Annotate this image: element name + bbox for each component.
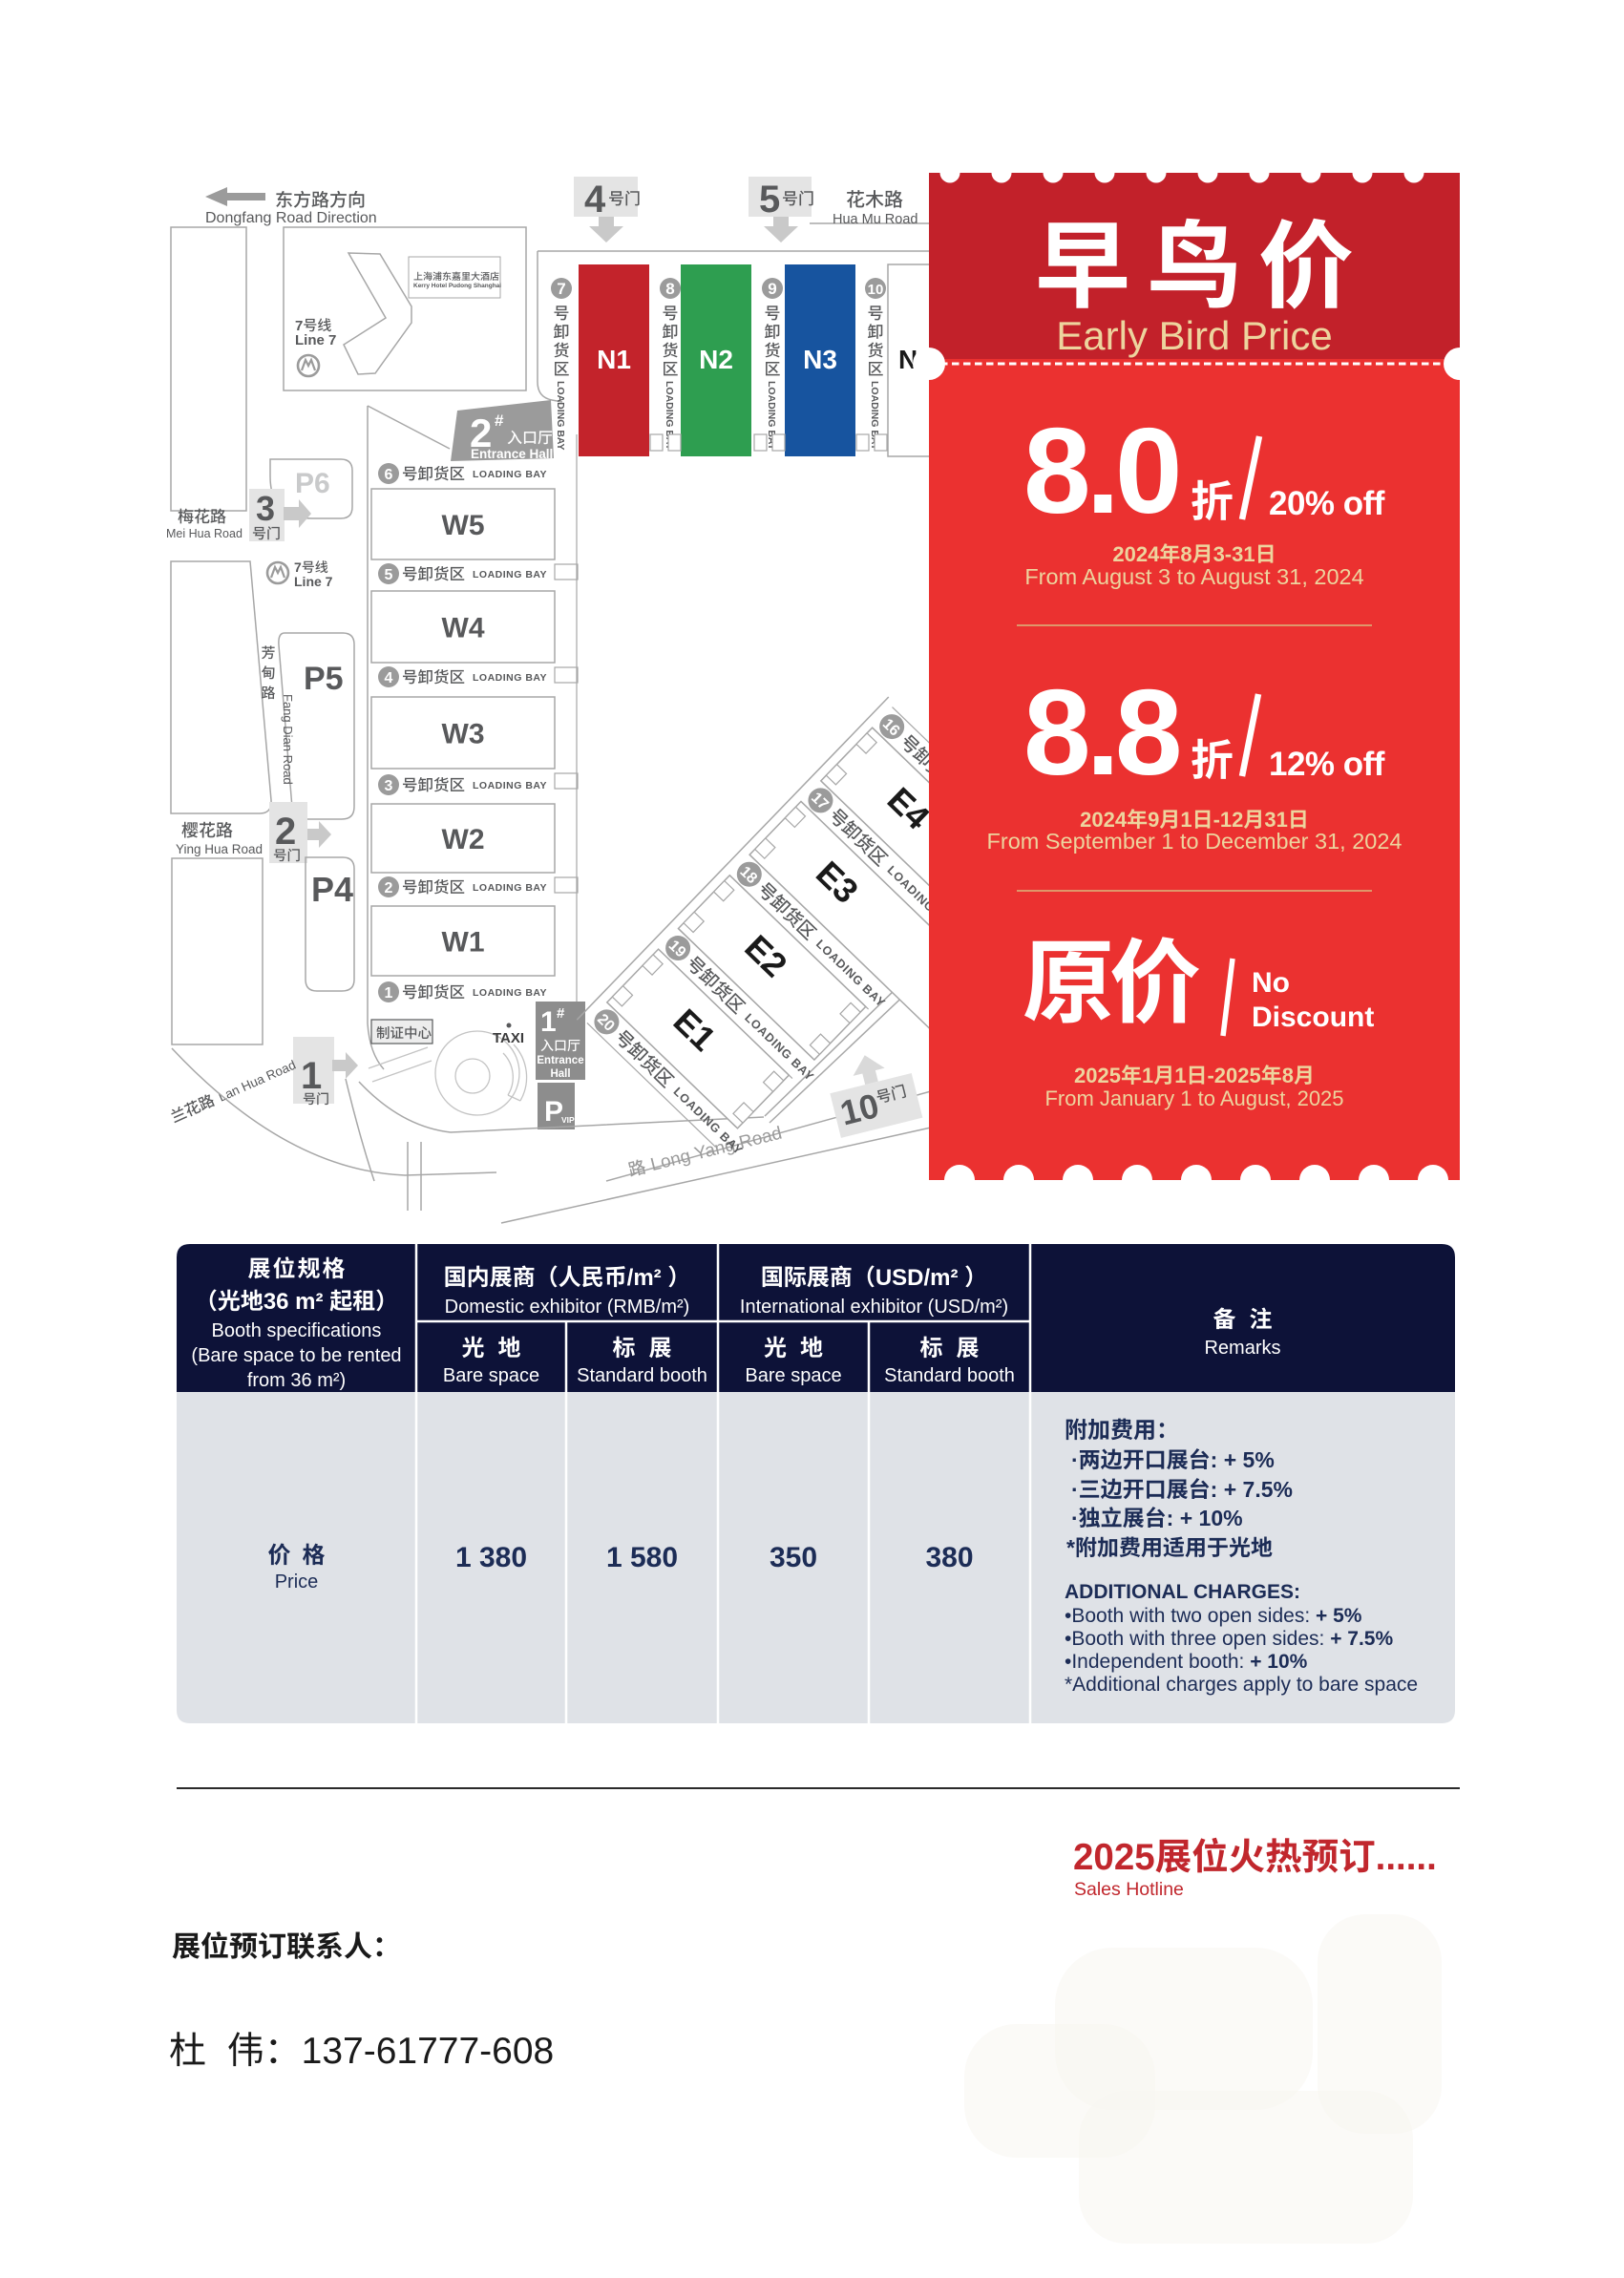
svg-text:Hall: Hall [550, 1068, 570, 1080]
svg-text:P: P [544, 1096, 563, 1128]
svg-text:6: 6 [385, 467, 393, 483]
svg-text:N2: N2 [699, 345, 733, 374]
svg-text:36 m²: 36 m² [264, 1289, 324, 1315]
svg-text:Standard booth: Standard booth [577, 1365, 707, 1386]
svg-text:VIP: VIP [561, 1115, 575, 1125]
svg-text:#: # [495, 411, 504, 430]
svg-text:8.0: 8.0 [1023, 403, 1178, 538]
svg-text:Dongfang Road Direction: Dongfang Road Direction [205, 210, 377, 226]
svg-text:Sales Hotline: Sales Hotline [1074, 1879, 1184, 1900]
svg-text:2: 2 [275, 811, 296, 853]
svg-text:8: 8 [665, 280, 674, 298]
svg-text:*Additional charges apply to b: *Additional charges apply to bare space [1065, 1674, 1418, 1696]
svg-text:W5: W5 [442, 510, 485, 541]
svg-text:5: 5 [759, 179, 780, 221]
svg-text:Mei Hua Road: Mei Hua Road [166, 527, 243, 540]
svg-text:1: 1 [540, 1006, 557, 1038]
svg-text:4: 4 [385, 670, 393, 686]
svg-text:Entrance Hall: Entrance Hall [471, 447, 553, 461]
svg-text:From January 1 to August, 2025: From January 1 to August, 2025 [1044, 1086, 1343, 1110]
svg-text:Ying Hua Road: Ying Hua Road [176, 842, 263, 856]
svg-text:1: 1 [385, 985, 393, 1002]
svg-text:Discount: Discount [1252, 1002, 1374, 1033]
svg-text:*: * [1066, 1535, 1075, 1560]
svg-text:International exhibitor (USD/m: International exhibitor (USD/m²) [740, 1297, 1008, 1318]
svg-text:W1: W1 [442, 927, 485, 959]
svg-text:8.8: 8.8 [1023, 664, 1179, 800]
svg-text:No: No [1252, 967, 1290, 999]
svg-text:LOADING BAY: LOADING BAY [473, 882, 547, 894]
svg-text:P5: P5 [304, 661, 344, 697]
svg-text:12% off: 12% off [1269, 746, 1385, 783]
svg-text:Standard booth: Standard booth [884, 1365, 1015, 1386]
svg-text:+ 5%: + 5% [1316, 1605, 1362, 1627]
svg-text:Kerry Hotel Pudong Shanghai: Kerry Hotel Pudong Shanghai [413, 283, 501, 289]
svg-text:3: 3 [385, 778, 393, 794]
svg-text:1: 1 [1142, 1064, 1153, 1087]
svg-text:: + 10%: : + 10% [1167, 1506, 1243, 1530]
svg-text:1 380: 1 380 [455, 1542, 527, 1573]
svg-text:from 36 m²): from 36 m²) [247, 1370, 346, 1391]
svg-text:Price: Price [275, 1571, 319, 1592]
svg-text:LOADING BAY: LOADING BAY [473, 987, 547, 999]
svg-text:P4: P4 [311, 870, 353, 909]
svg-text:P6: P6 [295, 468, 330, 499]
svg-text:Remarks: Remarks [1204, 1338, 1280, 1359]
svg-text:: + 7.5%: : + 7.5% [1211, 1477, 1293, 1502]
svg-text:ADDITIONAL CHARGES:: ADDITIONAL CHARGES: [1065, 1581, 1300, 1603]
svg-text:·: · [1071, 1506, 1079, 1530]
svg-text:2025: 2025 [1074, 1064, 1121, 1087]
svg-text:LOADING BAY: LOADING BAY [473, 780, 547, 791]
svg-text:1: 1 [1174, 1064, 1186, 1087]
svg-text:7: 7 [294, 559, 302, 575]
svg-text:9: 9 [768, 280, 776, 298]
svg-text:From August 3 to August 31, 20: From August 3 to August 31, 2024 [1024, 564, 1363, 589]
svg-text:: + 5%: : + 5% [1211, 1447, 1275, 1472]
svg-text:Line 7: Line 7 [294, 574, 333, 589]
svg-text:Line 7: Line 7 [295, 332, 336, 348]
svg-text:/m²: /m² [627, 1265, 662, 1291]
svg-text:-2025: -2025 [1207, 1064, 1260, 1087]
svg-text:W2: W2 [442, 824, 485, 855]
svg-text:TAXI: TAXI [493, 1030, 524, 1046]
svg-text:350: 350 [770, 1542, 817, 1573]
svg-text:+ 10%: + 10% [1250, 1651, 1307, 1673]
svg-text:Entrance: Entrance [537, 1055, 583, 1066]
svg-text:LOADING BAY: LOADING BAY [555, 381, 566, 451]
svg-text:From September 1 to December 3: From September 1 to December 31, 2024 [987, 829, 1403, 854]
svg-text:W4: W4 [442, 613, 485, 644]
svg-text:N3: N3 [803, 345, 837, 374]
svg-text:+ 7.5%: + 7.5% [1330, 1628, 1393, 1650]
svg-text:2: 2 [385, 880, 393, 896]
svg-text:N1: N1 [597, 345, 631, 374]
svg-text:1 580: 1 580 [606, 1542, 678, 1573]
svg-text:Domestic exhibitor (RMB/m²): Domestic exhibitor (RMB/m²) [445, 1297, 690, 1318]
svg-text:......: ...... [1376, 1837, 1437, 1878]
svg-text:2025: 2025 [1073, 1837, 1155, 1878]
svg-text:Early Bird Price: Early Bird Price [1056, 313, 1332, 358]
svg-text:LOADING BAY: LOADING BAY [473, 672, 547, 684]
svg-text:Booth specifications: Booth specifications [212, 1320, 382, 1341]
svg-text:Fang Dian Road: Fang Dian Road [281, 694, 295, 785]
svg-text:#: # [557, 1005, 565, 1022]
svg-text:(Bare space to be rented: (Bare space to be rented [191, 1345, 401, 1366]
svg-text:10: 10 [868, 282, 884, 298]
svg-text:1: 1 [301, 1055, 322, 1097]
svg-text:3-31: 3-31 [1213, 542, 1255, 566]
svg-text:8: 8 [1282, 1064, 1294, 1087]
svg-text:8: 8 [1180, 542, 1192, 566]
svg-text:·: · [1071, 1477, 1079, 1502]
svg-text:3: 3 [256, 489, 275, 528]
svg-text:Bare space: Bare space [443, 1365, 539, 1386]
svg-text:380: 380 [925, 1542, 973, 1573]
svg-text:USD/m²: USD/m² [875, 1265, 959, 1291]
svg-text:·: · [1071, 1447, 1079, 1472]
svg-text:•Booth with two open sides:: •Booth with two open sides: [1065, 1605, 1310, 1627]
svg-text:137-61777-608: 137-61777-608 [302, 2031, 555, 2072]
svg-text:Hua Mu Road: Hua Mu Road [833, 212, 917, 227]
svg-text:20% off: 20% off [1269, 485, 1385, 522]
svg-text:5: 5 [385, 567, 393, 583]
svg-text:•Booth with three open sides:: •Booth with three open sides: [1065, 1628, 1324, 1650]
svg-text:2024: 2024 [1112, 542, 1160, 566]
svg-text:LOADING BAY: LOADING BAY [473, 569, 547, 580]
svg-text:4: 4 [584, 179, 606, 221]
svg-text:Bare space: Bare space [745, 1365, 841, 1386]
svg-text:7: 7 [557, 280, 565, 298]
svg-text:•Independent booth:: •Independent booth: [1065, 1651, 1244, 1673]
svg-text:LOADING BAY: LOADING BAY [473, 469, 547, 480]
svg-text:W3: W3 [442, 719, 485, 750]
